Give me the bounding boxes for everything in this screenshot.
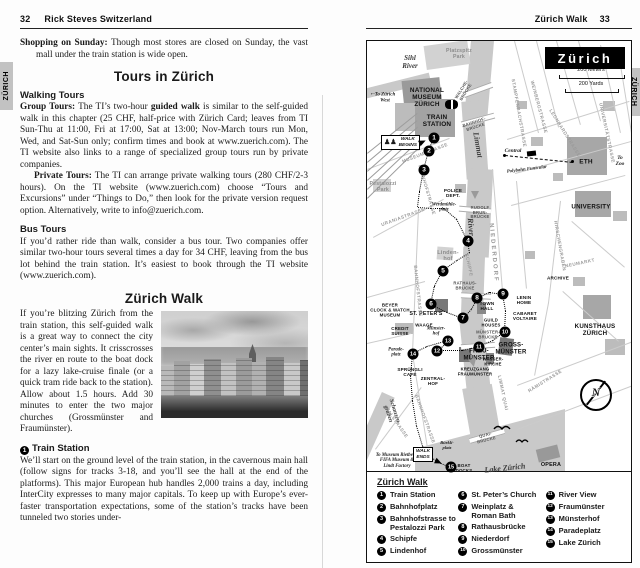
legend-stop-badge: 10 bbox=[458, 547, 467, 556]
right-header-title: Zürich Walk bbox=[535, 14, 588, 24]
map-label: TOWN HALL bbox=[480, 301, 495, 311]
map-stop-3: 3 bbox=[419, 165, 430, 176]
legend-item: 4Schipfe bbox=[377, 535, 458, 544]
zurich-riverfront-photo bbox=[161, 311, 308, 418]
legend-stop-badge: 11 bbox=[546, 491, 555, 500]
building-block bbox=[613, 211, 627, 221]
legend-title: Zürich Walk bbox=[377, 477, 631, 487]
legend-stop-label: Fraumünster bbox=[559, 503, 605, 512]
map-label: To Zoo bbox=[616, 155, 625, 167]
map-label: CREDIT SUISSE bbox=[391, 327, 409, 337]
bus-tours-heading: Bus Tours bbox=[20, 224, 308, 236]
legend-item: 12Fraumünster bbox=[546, 503, 631, 512]
scale-yards-bar bbox=[565, 89, 619, 93]
walk-route bbox=[417, 191, 420, 207]
book-title: Rick Steves Switzerland bbox=[44, 14, 152, 24]
legend-stop-badge: 13 bbox=[546, 515, 555, 524]
map-stop-8: 8 bbox=[472, 293, 483, 304]
map-label: KREUZGANG FRAUMÜNSTER bbox=[458, 367, 493, 376]
legend-stop-label: Rathausbrücke bbox=[471, 523, 525, 532]
building-block bbox=[525, 251, 535, 259]
scale-meters-bar bbox=[559, 75, 625, 79]
stop-1-badge: 1 bbox=[20, 446, 29, 455]
map-label: URANIASTRASSE bbox=[380, 207, 425, 228]
left-header-rule bbox=[20, 28, 308, 29]
map-stop-15: 15 bbox=[446, 462, 457, 473]
walk-route bbox=[416, 426, 423, 446]
map-label: LIMMAT QUAI bbox=[497, 375, 509, 411]
map-label: Central bbox=[505, 148, 522, 154]
tours-heading: Tours in Zürich bbox=[20, 71, 308, 83]
map-label: BEYER CLOCK & WATCH MUSEUM bbox=[370, 304, 410, 319]
map-label: ETH bbox=[579, 158, 593, 165]
map-canvas: Zürich 200 Meters 200 Yards N ♟♟WALK BEG… bbox=[367, 41, 631, 473]
station-paragraph: We’ll start on the ground level of the t… bbox=[20, 456, 308, 525]
legend-stop-badge: 1 bbox=[377, 491, 386, 500]
legend-item: 14Paradeplatz bbox=[546, 527, 631, 536]
legend-stop-label: Bahnhofplatz bbox=[390, 503, 438, 512]
kunsthaus-building bbox=[583, 295, 611, 319]
legend-stop-label: River View bbox=[559, 491, 597, 500]
legend-stop-label: Lake Zürich bbox=[559, 539, 601, 548]
guidebook-spread: { "left": { "page_num": "32", "book_titl… bbox=[0, 0, 640, 568]
map-stop-12: 12 bbox=[432, 346, 443, 357]
map-label: SPRÜNGLI CAFÉ bbox=[397, 367, 422, 377]
map-label: TRAIN STATION bbox=[423, 114, 452, 128]
legend-column: 11River View12Fraumünster13Münsterhof14P… bbox=[546, 491, 631, 559]
map-label: BOAT DOCKS bbox=[456, 464, 473, 473]
walking-tours-heading: Walking Tours bbox=[20, 90, 308, 102]
building-block bbox=[573, 277, 585, 286]
map-stop-2: 2 bbox=[424, 146, 435, 157]
legend-item: 13Münsterhof bbox=[546, 515, 631, 524]
map-label: GROSS- MÜNSTER bbox=[495, 342, 526, 355]
map-label: Polybahn Funicular bbox=[507, 165, 548, 175]
map-label: Lake Zürich bbox=[484, 462, 526, 473]
map-stop-1: 1 bbox=[429, 133, 440, 144]
building-block bbox=[531, 137, 543, 146]
map-stop-6: 6 bbox=[426, 299, 437, 310]
legend-column: 6St. Peter’s Church7Weinplatz & Roman Ba… bbox=[458, 491, 545, 559]
map-label: RATHAUS- BRÜCKE bbox=[453, 281, 476, 290]
right-page-header: Zürich Walk33 bbox=[535, 14, 610, 24]
scale-yards-label: 200 Yards bbox=[579, 81, 604, 87]
legend-stop-badge: 2 bbox=[377, 503, 386, 512]
legend-stop-badge: 15 bbox=[546, 539, 555, 548]
left-page-header: 32Rick Steves Switzerland bbox=[20, 14, 152, 24]
legend-stop-badge: 12 bbox=[546, 503, 555, 512]
legend-stop-badge: 3 bbox=[377, 515, 386, 524]
legend-stop-label: Weinplatz & Roman Bath bbox=[471, 503, 515, 520]
legend-stop-label: Münsterhof bbox=[559, 515, 600, 524]
street-line bbox=[516, 181, 527, 289]
legend-item: 2Bahnhofplatz bbox=[377, 503, 458, 512]
legend-item: 15Lake Zürich bbox=[546, 539, 631, 548]
photo-buildings bbox=[161, 356, 308, 396]
shopping-paragraph: Shopping on Sunday: Though most stores a… bbox=[20, 38, 308, 61]
legend-stop-badge: 7 bbox=[458, 503, 467, 512]
map-stop-10: 10 bbox=[500, 327, 511, 338]
chapter-tab-label: ZÜRICH bbox=[3, 71, 10, 100]
map-label: Münster- hof bbox=[427, 327, 445, 338]
station-stop-heading: 1Train Station bbox=[20, 443, 308, 455]
map-label: KUNSTHAUS ZÜRICH bbox=[575, 324, 616, 338]
legend-stop-label: St. Peter’s Church bbox=[471, 491, 536, 500]
map-label: ST. PETER'S bbox=[409, 312, 442, 318]
map-label: OPERA bbox=[541, 462, 561, 468]
map-stop-4: 4 bbox=[463, 236, 474, 247]
chapter-tab-left: ZÜRICH bbox=[0, 62, 13, 110]
map-label: POLICE DEPT. bbox=[444, 188, 462, 198]
map-title-box: Zürich bbox=[545, 47, 625, 69]
map-label: RUDOLF BRUN- BRÜCKE bbox=[470, 206, 489, 220]
legend-stop-badge: 5 bbox=[377, 547, 386, 556]
private-tours-paragraph: Private Tours: The TI can arrange privat… bbox=[20, 171, 308, 217]
left-page-body: Shopping on Sunday: Though most stores a… bbox=[20, 38, 308, 525]
map-label: ARCHIVE bbox=[547, 275, 569, 280]
walk-ends-label: WALK ENDS bbox=[416, 449, 430, 460]
funicular-icon bbox=[527, 151, 536, 157]
street-line bbox=[517, 385, 631, 430]
map-label: UNIVERSITY bbox=[571, 205, 610, 212]
street-line bbox=[517, 341, 631, 386]
map-label: RÄMISTRASSE bbox=[527, 369, 563, 394]
map-label: GUILD HOUSES bbox=[482, 318, 501, 327]
zurich-walk-map: Zürich 200 Meters 200 Yards N ♟♟WALK BEG… bbox=[366, 40, 632, 563]
map-stop-9: 9 bbox=[498, 289, 509, 300]
map-stop-14: 14 bbox=[408, 349, 419, 360]
legend-stop-label: Schipfe bbox=[390, 535, 417, 544]
legend-column: 1Train Station2Bahnhofplatz3Bahnhofstras… bbox=[377, 491, 458, 559]
legend-item: 1Train Station bbox=[377, 491, 458, 500]
legend-item: 3Bahnhofstrasse to Pestalozzi Park bbox=[377, 515, 458, 532]
station-heading-label: Train Station bbox=[32, 443, 90, 454]
map-label: Bürkli- platz bbox=[440, 440, 454, 450]
bird-icon bbox=[493, 423, 511, 430]
compass-rose-icon: N bbox=[580, 379, 612, 411]
map-stop-13: 13 bbox=[443, 336, 454, 347]
walk-heading: Zürich Walk bbox=[20, 293, 308, 305]
walker-icons: ♟♟ bbox=[384, 139, 397, 146]
map-label: To Zürich West bbox=[375, 92, 396, 103]
legend-stop-badge: 14 bbox=[546, 527, 555, 536]
walk-begins-box: ♟♟WALK BEGINS bbox=[381, 135, 420, 150]
legend-item: 11River View bbox=[546, 491, 631, 500]
legend-item: 8Rathausbrücke bbox=[458, 523, 545, 532]
funicular-endpoint bbox=[503, 154, 506, 157]
map-label: Pestalozzi Park bbox=[369, 182, 396, 194]
map-label: MÜNSTER- BRÜCKE bbox=[476, 330, 500, 339]
legend-stop-label: Lindenhof bbox=[390, 547, 426, 556]
legend-stop-label: Paradeplatz bbox=[559, 527, 601, 536]
left-page-number: 32 bbox=[20, 14, 30, 24]
river-flow-arrow bbox=[471, 191, 479, 199]
legend-item: 10Grossmünster bbox=[458, 547, 545, 556]
funicular-endpoint bbox=[571, 160, 574, 163]
legend-item: 6St. Peter’s Church bbox=[458, 491, 545, 500]
legend-stop-badge: 8 bbox=[458, 523, 467, 532]
legend-stop-label: Bahnhofstrasse to Pestalozzi Park bbox=[390, 515, 456, 532]
map-label: NATIONAL MUSEUM ZÜRICH bbox=[410, 87, 444, 109]
map-label: NEUMARKT bbox=[565, 257, 596, 268]
map-stop-5: 5 bbox=[438, 266, 449, 277]
photo-river-water bbox=[161, 396, 308, 418]
right-page-number: 33 bbox=[600, 14, 610, 24]
map-label: LENIN HOME bbox=[517, 295, 532, 305]
legend-stop-label: Niederdorf bbox=[471, 535, 509, 544]
river-flow-arrow bbox=[468, 358, 477, 367]
map-label: Linden- hof bbox=[437, 250, 459, 263]
map-label: River bbox=[465, 218, 475, 236]
legend-columns: 1Train Station2Bahnhofplatz3Bahnhofstras… bbox=[377, 491, 631, 559]
walk-begins-label: WALK BEGINS bbox=[399, 137, 417, 148]
walk-begins-arrow bbox=[418, 138, 427, 146]
map-legend: Zürich Walk 1Train Station2Bahnhofplatz3… bbox=[367, 471, 631, 562]
legend-stop-badge: 9 bbox=[458, 535, 467, 544]
legend-item: 9Niederdorf bbox=[458, 535, 545, 544]
legend-stop-label: Train Station bbox=[390, 491, 435, 500]
legend-stop-badge: 6 bbox=[458, 491, 467, 500]
page-gutter bbox=[322, 95, 323, 568]
right-header-rule bbox=[366, 28, 632, 29]
map-stop-7: 7 bbox=[458, 313, 469, 324]
building-block bbox=[553, 173, 563, 181]
map-label: Parade- platz bbox=[388, 348, 404, 359]
walk-ends-box: WALK ENDS bbox=[413, 447, 433, 462]
legend-stop-badge: 4 bbox=[377, 535, 386, 544]
map-stop-11: 11 bbox=[474, 342, 485, 353]
legend-item: 5Lindenhof bbox=[377, 547, 458, 556]
legend-stop-label: Grossmünster bbox=[471, 547, 522, 556]
walk-route bbox=[410, 376, 413, 401]
map-label: ZENTRAL- HOF bbox=[421, 376, 446, 386]
train-station-icon bbox=[445, 100, 458, 109]
legend-item: 7Weinplatz & Roman Bath bbox=[458, 503, 545, 520]
map-label: Sihl River bbox=[402, 55, 418, 71]
map-label: CABARET VOLTAIRE bbox=[513, 311, 537, 321]
map-label: Platzspitz Park bbox=[446, 49, 472, 61]
map-label: To Museum Rietberg, FIFA Museum & Lindt … bbox=[376, 453, 419, 469]
bird-icon bbox=[515, 437, 529, 443]
group-tours-paragraph: Group Tours: The TI’s two-hour guided wa… bbox=[20, 102, 308, 171]
bus-tours-paragraph: If you’d rather ride than walk, consider… bbox=[20, 237, 308, 283]
compass-north-label: N bbox=[582, 385, 610, 400]
